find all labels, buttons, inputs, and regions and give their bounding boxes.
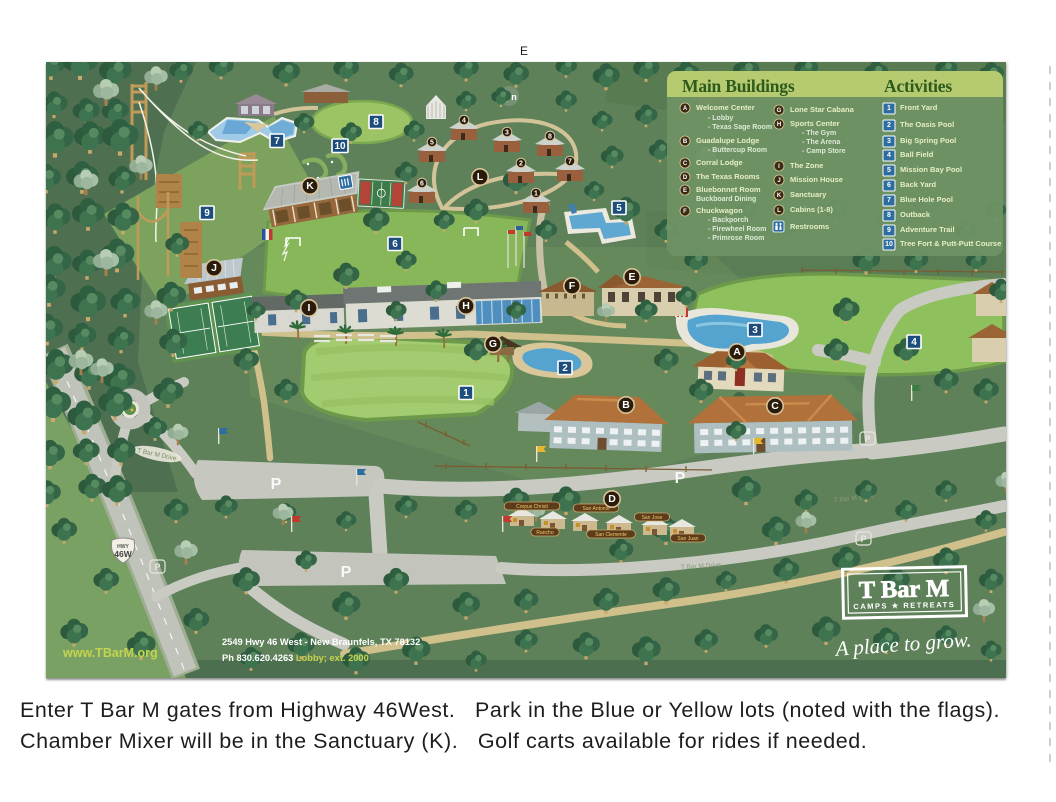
svg-text:- Texas Sage Room: - Texas Sage Room <box>708 124 772 131</box>
svg-text:2: 2 <box>519 161 523 168</box>
svg-text:The Zone: The Zone <box>790 161 823 170</box>
svg-text:9: 9 <box>887 227 891 234</box>
svg-text:San Antonio: San Antonio <box>583 506 610 512</box>
svg-text:B: B <box>622 399 630 411</box>
svg-text:P: P <box>675 470 686 487</box>
svg-text:- Firewheel Room: - Firewheel Room <box>708 226 766 233</box>
svg-text:2: 2 <box>562 363 568 374</box>
svg-text:- The Arena: - The Arena <box>802 139 840 146</box>
svg-text:Activities: Activities <box>884 76 952 96</box>
svg-text:J: J <box>777 178 780 184</box>
svg-text:10: 10 <box>334 141 346 152</box>
svg-text:Ph 830.620.4263 Lobby; ext. 20: Ph 830.620.4263 Lobby; ext. 2000 <box>222 653 369 663</box>
svg-text:1: 1 <box>534 191 538 198</box>
svg-text:F: F <box>683 209 687 215</box>
svg-text:www.TBarM.org: www.TBarM.org <box>62 646 158 660</box>
svg-text:J: J <box>211 262 217 274</box>
svg-text:Rancho: Rancho <box>536 530 553 536</box>
svg-text:P: P <box>341 564 352 581</box>
svg-text:Corral Lodge: Corral Lodge <box>696 158 743 167</box>
svg-text:P: P <box>271 476 282 493</box>
svg-text:E: E <box>683 188 687 194</box>
svg-text:Restrooms: Restrooms <box>790 222 829 231</box>
svg-text:Mission House: Mission House <box>790 175 843 184</box>
svg-text:3: 3 <box>887 138 891 145</box>
svg-text:1: 1 <box>463 388 469 399</box>
svg-text:Blue Hole Pool: Blue Hole Pool <box>900 195 953 204</box>
svg-text:4: 4 <box>911 337 917 348</box>
svg-text:7: 7 <box>274 136 280 147</box>
svg-text:H: H <box>462 300 470 312</box>
svg-text:Main Buildings: Main Buildings <box>682 76 795 96</box>
svg-text:Buckboard Dining: Buckboard Dining <box>696 196 756 203</box>
svg-text:3: 3 <box>505 130 509 137</box>
svg-text:D: D <box>608 493 616 505</box>
svg-text:6: 6 <box>392 239 398 250</box>
svg-text:H: H <box>777 122 781 128</box>
svg-text:n: n <box>511 92 517 102</box>
svg-text:- Primrose Room: - Primrose Room <box>708 235 764 242</box>
svg-text:F: F <box>569 280 576 292</box>
svg-text:C: C <box>771 400 779 412</box>
svg-text:B: B <box>683 139 688 145</box>
svg-text:2: 2 <box>887 122 891 129</box>
svg-text:G: G <box>489 338 497 350</box>
svg-text:3: 3 <box>752 325 758 336</box>
svg-text:8: 8 <box>373 117 379 128</box>
svg-text:- Lobby: - Lobby <box>708 115 733 122</box>
svg-text:The Texas Rooms: The Texas Rooms <box>696 172 760 181</box>
svg-text:P: P <box>860 534 866 544</box>
svg-text:6: 6 <box>887 182 891 189</box>
svg-text:Adventure Trail: Adventure Trail <box>900 225 955 234</box>
svg-text:K: K <box>306 180 314 192</box>
svg-text:7: 7 <box>568 159 572 166</box>
svg-text:Bluebonnet Room: Bluebonnet Room <box>696 185 761 194</box>
svg-text:- The Gym: - The Gym <box>802 130 836 137</box>
svg-text:P: P <box>154 562 160 572</box>
svg-text:L: L <box>777 208 781 214</box>
svg-text:Back Yard: Back Yard <box>900 180 937 189</box>
svg-text:D: D <box>683 175 688 181</box>
svg-text:Front Yard: Front Yard <box>900 103 938 112</box>
svg-text:8: 8 <box>548 134 552 141</box>
svg-text:2549 Hwy 46 West - New Braunfe: 2549 Hwy 46 West - New Braunfels, TX 781… <box>222 637 420 647</box>
svg-text:- Backporch: - Backporch <box>708 217 748 224</box>
svg-text:7: 7 <box>887 197 891 204</box>
svg-text:5: 5 <box>616 203 622 214</box>
svg-text:Cabins (1-8): Cabins (1-8) <box>790 205 833 214</box>
svg-text:The Oasis Pool: The Oasis Pool <box>900 120 954 129</box>
svg-text:4: 4 <box>462 118 466 125</box>
svg-text:Sports Center: Sports Center <box>790 119 840 128</box>
svg-text:I: I <box>308 302 311 314</box>
svg-text:5: 5 <box>430 140 434 147</box>
svg-text:P: P <box>864 434 870 444</box>
svg-text:- Buttercup Room: - Buttercup Room <box>708 147 767 154</box>
svg-text:1: 1 <box>887 105 891 112</box>
svg-text:San Clemente: San Clemente <box>595 532 627 538</box>
svg-text:6: 6 <box>420 181 424 188</box>
svg-text:G: G <box>777 108 782 114</box>
svg-text:Lone Star Cabana: Lone Star Cabana <box>790 105 855 114</box>
svg-text:Welcome Center: Welcome Center <box>696 103 755 112</box>
svg-text:Big Spring Pool: Big Spring Pool <box>900 136 956 145</box>
svg-text:- Camp Store: - Camp Store <box>802 148 846 155</box>
svg-text:Corpus Christi: Corpus Christi <box>516 504 548 510</box>
svg-text:Tree Fort & Putt-Putt Course: Tree Fort & Putt-Putt Course <box>900 239 1001 248</box>
svg-text:E: E <box>628 271 635 283</box>
svg-text:San Juan: San Juan <box>677 536 698 542</box>
svg-text:4: 4 <box>887 152 891 159</box>
svg-text:Mission Bay Pool: Mission Bay Pool <box>900 165 962 174</box>
svg-text:9: 9 <box>204 208 210 219</box>
svg-text:Outback: Outback <box>900 210 931 219</box>
svg-text:A: A <box>683 106 688 112</box>
svg-text:5: 5 <box>887 167 891 174</box>
svg-text:C: C <box>683 161 688 167</box>
svg-text:A: A <box>733 346 741 358</box>
svg-text:Chuckwagon: Chuckwagon <box>696 206 743 215</box>
svg-text:46W: 46W <box>114 549 132 559</box>
svg-text:L: L <box>477 171 484 183</box>
svg-text:Ball Field: Ball Field <box>900 150 934 159</box>
svg-text:Guadalupe Lodge: Guadalupe Lodge <box>696 136 759 145</box>
svg-text:San Jose: San Jose <box>642 515 663 521</box>
svg-text:Sanctuary: Sanctuary <box>790 190 827 199</box>
svg-text:8: 8 <box>887 212 891 219</box>
svg-text:K: K <box>777 193 782 199</box>
svg-text:10: 10 <box>885 241 893 248</box>
